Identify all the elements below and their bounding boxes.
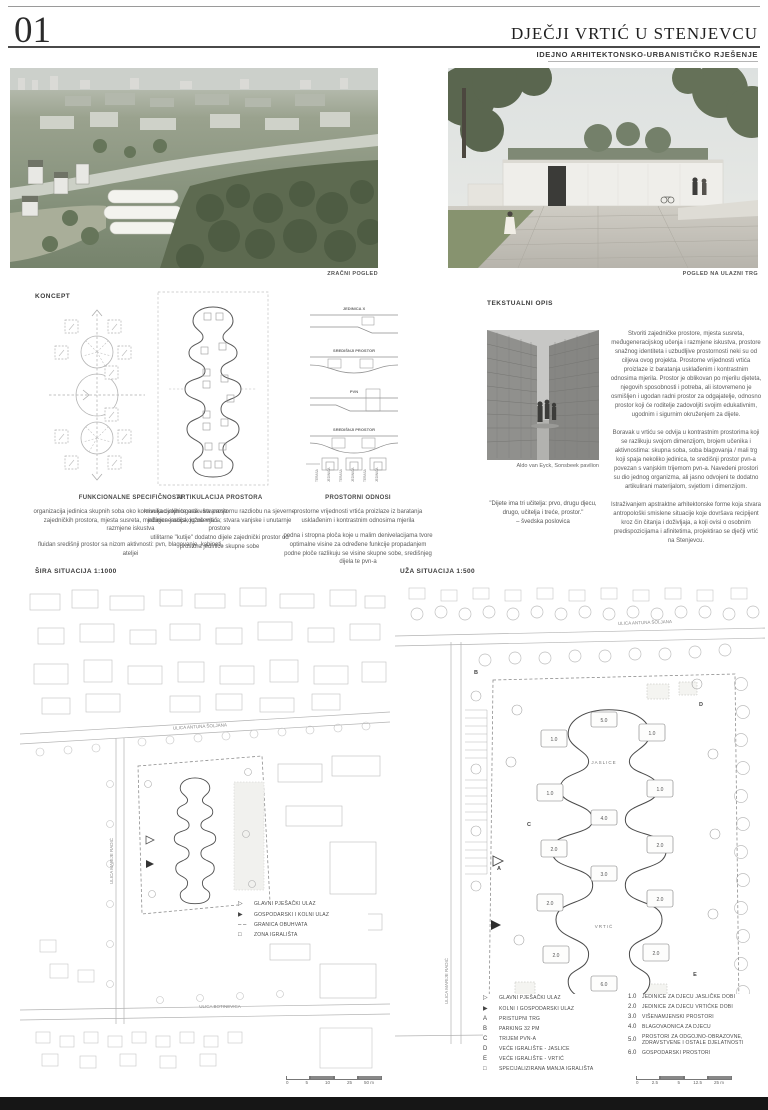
quote-attribution: – švedska poslovica — [482, 518, 604, 527]
subtitle-rule — [548, 61, 758, 62]
competition-board: 01 DJEČJI VRTIĆ U STENJEVCU IDEJNO ARHIT… — [0, 0, 768, 1110]
strip-label-1: TERASA — [315, 468, 319, 482]
legend-label: SPECIJALIZIRANA MANJA IGRALIŠTA — [499, 1066, 593, 1072]
legend-key: 4.0 — [628, 1024, 642, 1030]
concept-label: KONCEPT — [35, 293, 70, 300]
textual-paragraph: Istraživanjem apstraktne arhitektonske f… — [610, 501, 762, 546]
unit-label: 2.0 — [547, 901, 554, 907]
legend-label: GRANICA OBUHVATA — [254, 922, 308, 928]
scalebar-numbers: 0 5 10 25 50 m — [286, 1080, 396, 1085]
scalebar-numbers: 0 2.5 5 12.5 25 m — [636, 1080, 746, 1085]
dashed-line-icon: – – — [238, 922, 254, 928]
concept-diagram-sections: JEDINICA X SREDIŠNJI PROSTOR PVN SREDIŠN… — [306, 303, 402, 483]
area-label-jaslice: JASLICE — [591, 760, 616, 765]
legend-label: PROSTORI ZA ODGOJNO-OBRAZOVNE, ZDRAVSTVE… — [642, 1034, 766, 1046]
legend-label: PARKING 32 PM — [499, 1026, 540, 1032]
column-paragraph: prostorne vrijednosti vrtića proizlaze i… — [283, 508, 433, 525]
legend-label: GLAVNI PJEŠAČKI ULAZ — [254, 901, 316, 907]
quote-block: "Dijete ima tri učitelja: prvo, drugu dj… — [482, 500, 604, 527]
unit-label: 2.0 — [657, 843, 664, 849]
legend-label: VEĆE IGRALIŠTE - JASLICE — [499, 1046, 570, 1052]
textual-body: Stvoriti zajedničke prostore, mjesta sus… — [610, 330, 762, 555]
strip-label-3: TERASA — [339, 468, 343, 482]
unit-label: 2.0 — [657, 897, 664, 903]
scale-tick: 2.5 — [642, 1080, 658, 1085]
quote-text: "Dijete ima tri učitelja: prvo, drugu dj… — [482, 500, 604, 518]
strip-label-2: JEDINICA — [327, 467, 331, 482]
wide-plan-title: ŠIRA SITUACIJA 1:1000 — [35, 568, 117, 575]
column-heading: ARTIKULACIJA PROSTORA — [142, 495, 297, 501]
legend-key: E — [483, 1056, 499, 1062]
small-playground-icon: □ — [483, 1066, 499, 1072]
sections-drawing: JEDINICA X SREDIŠNJI PROSTOR PVN SREDIŠN… — [306, 303, 402, 483]
legend-key: B — [483, 1026, 499, 1032]
unit-label: 6.0 — [601, 982, 608, 988]
legend-key: D — [483, 1046, 499, 1052]
concept-diagram-organisation — [45, 306, 149, 484]
legend-label: TRIJEM PVN-A — [499, 1036, 536, 1042]
unit-label: 4.0 — [601, 816, 608, 822]
unit-label: 2.0 — [653, 951, 660, 957]
legend-key: 5.0 — [628, 1037, 642, 1043]
unit-label: 2.0 — [551, 847, 558, 853]
scale-tick: 25 — [330, 1080, 352, 1085]
key-letter-e: E — [693, 972, 697, 978]
aerial-render — [10, 68, 378, 268]
aerial-render-illustration — [10, 68, 378, 268]
concept-diagram-envelope — [157, 291, 269, 486]
photo-caption: Aldo van Eyck, Sonsbeek pavilion — [487, 463, 599, 469]
section-label-2: SREDIŠNJI PROSTOR — [333, 348, 375, 353]
board-subtitle: IDEJNO ARHITEKTONSKO-URBANISTIČKO RJEŠEN… — [537, 50, 758, 59]
unit-label: 5.0 — [601, 718, 608, 724]
textual-paragraph: Boravak u vrtiću se odvija u kontrastnim… — [610, 429, 762, 492]
concept-column-articulation: ARTIKULACIJA PROSTORA krivulja ovojnice … — [142, 495, 297, 558]
legend-key: 3.0 — [628, 1014, 642, 1020]
reference-photo — [487, 330, 599, 460]
vaneyck-photo-illustration — [487, 330, 599, 460]
footer-bar — [0, 1097, 768, 1110]
textual-paragraph: Stvoriti zajedničke prostore, mjesta sus… — [610, 330, 762, 420]
top-rule — [8, 6, 760, 7]
scale-tick: 25 m — [702, 1080, 724, 1085]
page-number: 01 — [14, 12, 51, 49]
scale-tick: 10 — [308, 1080, 330, 1085]
aerial-caption: ZRAČNI POGLED — [10, 271, 378, 277]
legend-key: C — [483, 1036, 499, 1042]
strip-label-5: TERASA — [363, 468, 367, 482]
legend-label: GOSPODARSKI I KOLNI ULAZ — [254, 912, 329, 918]
legend-key: 1.0 — [628, 994, 642, 1000]
wide-plan-scalebar: 0 5 10 25 50 m — [286, 1076, 396, 1085]
street-label-bottom: ULICA BOTINEVICA — [199, 1004, 241, 1009]
legend-key: 2.0 — [628, 1004, 642, 1010]
legend-label: GLAVNI PJEŠAČKI ULAZ — [499, 995, 561, 1001]
legend-label: GOSPODARSKI PROSTORI — [642, 1050, 710, 1056]
unit-label: 3.0 — [601, 872, 608, 878]
section-label-4: SREDIŠNJI PROSTOR — [333, 427, 375, 432]
entry-caption: POGLED NA ULAZNI TRG — [448, 271, 758, 277]
legend-label: VIŠENAMJENSKI PROSTORI — [642, 1014, 714, 1020]
board-title: DJEČJI VRTIĆ U STENJEVCU — [511, 24, 758, 44]
zone-icon: □ — [238, 932, 254, 938]
legend-key: 6.0 — [628, 1050, 642, 1056]
wide-site-plan: ULICA ANTUNA ŠOLJANA ULICA MARIJE RADIĆ … — [20, 584, 390, 1074]
wide-plan-legend: ▷GLAVNI PJEŠAČKI ULAZ ▶GOSPODARSKI I KOL… — [238, 900, 368, 942]
close-plan-scalebar: 0 2.5 5 12.5 25 m — [636, 1076, 746, 1085]
unit-label: 1.0 — [551, 737, 558, 743]
column-paragraph: utilitarne "kutije" dodatno dijele zajed… — [142, 534, 297, 551]
close-plan-legend-programs: 1.0JEDINICE ZA DJECU JASLIČKE DOBI 2.0JE… — [628, 994, 766, 1060]
entrance-outline-icon: ▷ — [238, 900, 254, 907]
unit-label: 1.0 — [649, 731, 656, 737]
key-letter-a: A — [497, 866, 501, 872]
entry-render-illustration — [448, 68, 758, 268]
close-plan-title: UŽA SITUACIJA 1:500 — [400, 568, 475, 575]
area-label-vrtic: VRTIĆ — [595, 923, 613, 929]
column-heading: PROSTORNI ODNOSI — [283, 495, 433, 501]
key-letter-c: C — [527, 822, 531, 828]
column-paragraph: podna i stropna ploča koje u malim deniv… — [283, 532, 433, 567]
street-label-left: ULICA MARIJE RADIĆ — [443, 957, 449, 1004]
scale-tick: 12.5 — [680, 1080, 702, 1085]
header-rule — [8, 46, 760, 48]
scale-tick: 50 m — [352, 1080, 374, 1085]
legend-label: ZONA IGRALIŠTA — [254, 932, 298, 938]
key-letter-b: B — [474, 670, 478, 676]
section-label-3: PVN — [350, 389, 358, 394]
textual-label: TEKSTUALNI OPIS — [487, 300, 553, 307]
entry-render — [448, 68, 758, 268]
street-label-top: ULICA ANTUNA ŠOLJANA — [173, 721, 227, 730]
legend-label: VEĆE IGRALIŠTE - VRTIĆ — [499, 1056, 564, 1062]
strip-label-4: JEDINICA — [351, 467, 355, 482]
legend-label: JEDINICE ZA DJECU JASLIČKE DOBI — [642, 994, 735, 1000]
entrance-filled-icon: ▶ — [483, 1005, 499, 1012]
street-label-left: ULICA MARIJE RADIĆ — [108, 837, 114, 884]
column-paragraph: krivulja ovojnice artikulira prostornu r… — [142, 508, 297, 534]
section-label-1: JEDINICA X — [343, 306, 366, 311]
legend-label: BLAGOVAONICA ZA DJECU — [642, 1024, 711, 1030]
legend-label: JEDINICE ZA DJECU VRTIĆKE DOBI — [642, 1004, 733, 1010]
entrance-outline-icon: ▷ — [483, 994, 499, 1001]
legend-label: PRISTUPNI TRG — [499, 1016, 540, 1022]
scale-tick: 5 — [658, 1080, 680, 1085]
close-plan-legend-keys: ▷GLAVNI PJEŠAČKI ULAZ ▶KOLNI I GOSPODARS… — [483, 994, 633, 1076]
unit-label: 1.0 — [657, 787, 664, 793]
concept-column-relations: PROSTORNI ODNOSI prostorne vrijednosti v… — [283, 495, 433, 574]
key-letter-d: D — [699, 702, 703, 708]
entrance-filled-icon: ▶ — [238, 911, 254, 918]
unit-label: 2.0 — [553, 953, 560, 959]
strip-label-6: JEDINICA — [375, 467, 379, 482]
legend-key: A — [483, 1016, 499, 1022]
street-label-top: ULICA ANTUNA ŠOLJANA — [618, 618, 672, 626]
scale-tick: 5 — [292, 1080, 308, 1085]
unit-label: 1.0 — [547, 791, 554, 797]
legend-label: KOLNI I GOSPODARSKI ULAZ — [499, 1006, 574, 1012]
